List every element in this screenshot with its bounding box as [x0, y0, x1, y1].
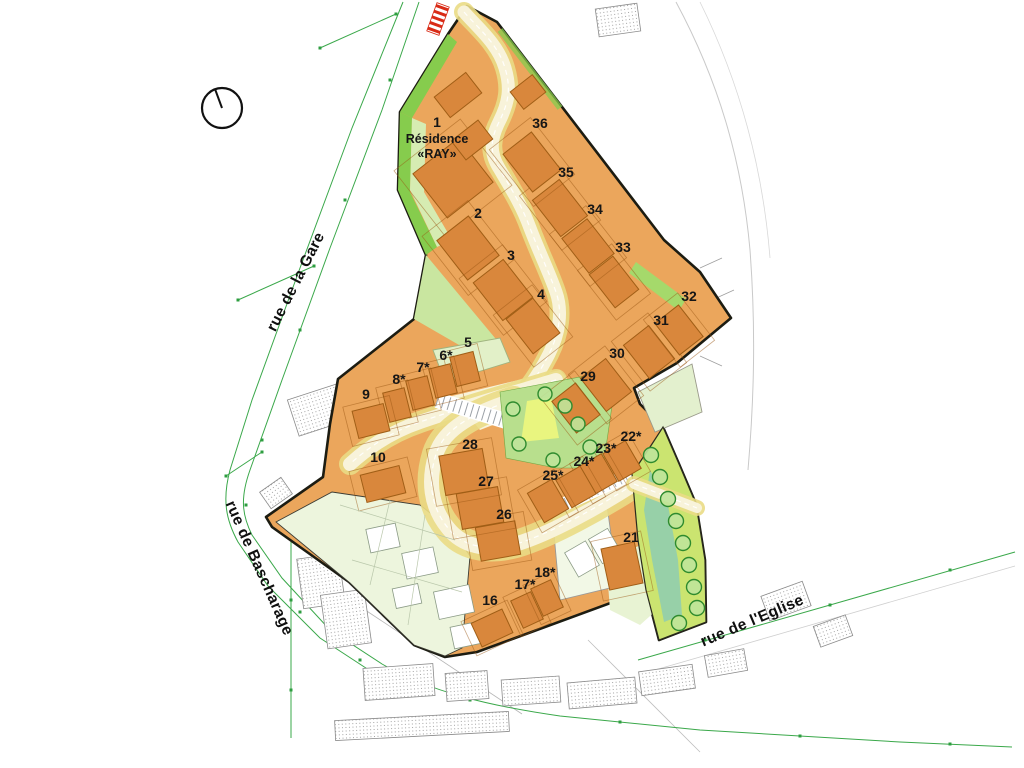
- lot-label-26: 26: [496, 506, 512, 522]
- survey-point: [225, 475, 228, 478]
- tree-icon: [676, 536, 691, 551]
- lot-label-3: 3: [507, 247, 515, 263]
- tree-icon: [506, 402, 520, 416]
- residence-name-line1: Résidence: [406, 132, 469, 146]
- existing-building-hatch: [639, 664, 696, 695]
- tree-icon: [687, 580, 702, 595]
- existing-building-hatch: [595, 3, 640, 37]
- existing-building-hatch: [704, 649, 747, 678]
- lot-label-21: 21: [623, 529, 639, 545]
- lot-label-30: 30: [609, 345, 625, 361]
- tree-icon: [690, 601, 705, 616]
- survey-point: [344, 199, 347, 202]
- existing-building: [639, 664, 696, 695]
- tree-icon: [682, 558, 697, 573]
- survey-point: [799, 735, 802, 738]
- survey-point: [949, 569, 952, 572]
- survey-point: [261, 451, 264, 454]
- survey-point: [389, 79, 392, 82]
- street-label-gare: rue de la Gare: [264, 230, 329, 335]
- lot-label-7: 7*: [416, 359, 430, 375]
- lot-label-24: 24*: [573, 453, 595, 469]
- north-compass-needle: [215, 89, 222, 108]
- lot-label-28: 28: [462, 436, 478, 452]
- lot-label-34: 34: [587, 201, 603, 217]
- tree-icon: [644, 448, 659, 463]
- residence-name-line2: «RAY»: [417, 147, 456, 161]
- lot-label-9: 9: [362, 386, 370, 402]
- lot-label-35: 35: [558, 164, 574, 180]
- existing-building: [501, 676, 561, 706]
- entrance-marker-icon: [427, 3, 449, 36]
- tree-icon: [672, 616, 687, 631]
- lot-label-32: 32: [681, 288, 697, 304]
- existing-building: [567, 677, 637, 709]
- lot-label-17: 17*: [514, 576, 536, 592]
- lot-label-23: 23*: [595, 440, 617, 456]
- survey-point: [395, 13, 398, 16]
- tree-icon: [558, 399, 572, 413]
- existing-building-hatch: [501, 676, 561, 706]
- lot-label-4: 4: [537, 286, 545, 302]
- survey-point: [299, 329, 302, 332]
- existing-building: [445, 671, 489, 702]
- lot-label-22: 22*: [620, 428, 642, 444]
- survey-point: [829, 604, 832, 607]
- survey-point: [619, 721, 622, 724]
- existing-building: [335, 711, 510, 740]
- lot-label-5: 5: [464, 334, 472, 350]
- site-plan-map: 123456*7*8*9101617*18*2122*23*24*25*2627…: [0, 0, 1024, 768]
- lot-label-1: 1: [433, 114, 441, 130]
- tree-icon: [546, 453, 560, 467]
- tree-icon: [653, 470, 668, 485]
- lot-label-29: 29: [580, 368, 596, 384]
- lot-label-10: 10: [370, 449, 386, 465]
- lot-label-18: 18*: [534, 564, 556, 580]
- survey-point: [319, 47, 322, 50]
- tree-icon: [571, 417, 585, 431]
- survey-point: [245, 504, 248, 507]
- lot-label-2: 2: [474, 205, 482, 221]
- lot-label-31: 31: [653, 312, 669, 328]
- survey-point: [237, 299, 240, 302]
- tree-icon: [538, 387, 552, 401]
- lot-label-25: 25*: [542, 467, 564, 483]
- lot-label-36: 36: [532, 115, 548, 131]
- tree-icon: [512, 437, 526, 451]
- lot-label-6: 6*: [439, 347, 453, 363]
- survey-point: [290, 599, 293, 602]
- entrance-marker: [427, 3, 449, 36]
- survey-point: [290, 689, 293, 692]
- survey-point: [949, 743, 952, 746]
- building-lot-26: [475, 521, 520, 561]
- survey-point: [261, 439, 264, 442]
- existing-building-hatch: [813, 615, 852, 647]
- existing-building-hatch: [363, 664, 435, 701]
- street-label-eglise: rue de l'Eglise: [698, 591, 806, 650]
- lot-label-8: 8*: [392, 371, 406, 387]
- existing-building: [595, 3, 640, 37]
- existing-road-edge: [700, 2, 770, 258]
- building-lot-26: [475, 521, 520, 561]
- survey-point: [359, 659, 362, 662]
- existing-building: [704, 649, 747, 678]
- site-plan-page: 123456*7*8*9101617*18*2122*23*24*25*2627…: [0, 0, 1024, 768]
- tree-icon: [669, 514, 684, 529]
- survey-point: [299, 611, 302, 614]
- existing-building: [813, 615, 852, 647]
- north-compass: [202, 88, 242, 128]
- existing-building: [363, 664, 435, 701]
- lot-label-16: 16: [482, 592, 498, 608]
- lot-label-33: 33: [615, 239, 631, 255]
- lot-label-27: 27: [478, 473, 494, 489]
- existing-building-hatch: [445, 671, 489, 702]
- tree-icon: [661, 492, 676, 507]
